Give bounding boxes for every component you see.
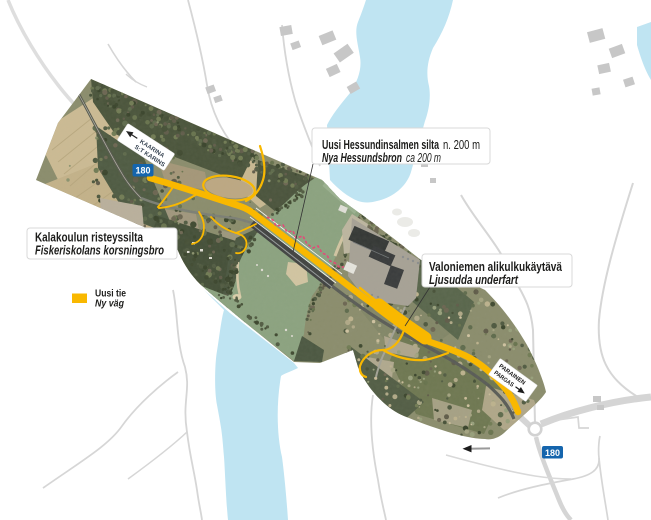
svg-text:180: 180 <box>136 166 151 177</box>
svg-text:Ny väg: Ny väg <box>95 299 124 310</box>
svg-text:Valoniemen alikulkukäytävä: Valoniemen alikulkukäytävä <box>429 260 562 274</box>
svg-text:180: 180 <box>545 448 560 459</box>
svg-text:Nya Hessundsbron: Nya Hessundsbron <box>322 151 402 165</box>
svg-text:Ljusudda underfart: Ljusudda underfart <box>429 273 519 287</box>
svg-text:Kalakoulun risteyssilta: Kalakoulun risteyssilta <box>35 231 144 245</box>
svg-text:Uusi Hessundinsalmen silta: Uusi Hessundinsalmen silta <box>322 138 440 152</box>
svg-text:ca 200 m: ca 200 m <box>406 151 441 165</box>
svg-text:Fiskeriskolans korsningsbro: Fiskeriskolans korsningsbro <box>35 244 164 258</box>
svg-text:n. 200 m: n. 200 m <box>443 138 480 152</box>
